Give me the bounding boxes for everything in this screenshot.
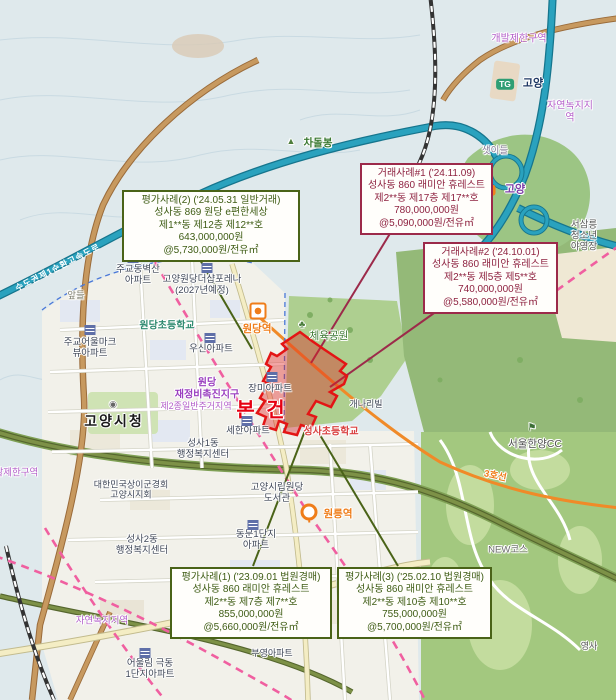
station-wondang-icon: [250, 303, 267, 320]
center-seongsa2: 성사2동 행정복지센터: [116, 535, 168, 557]
bare-ground-patch: [172, 34, 224, 58]
callout-sale-case-2: 거래사례#2 ('24.10.01) 성사동 860 래미안 휴레스트 제2**…: [423, 242, 558, 314]
school-wondang-elem: 원당초등학교: [139, 320, 194, 332]
apt-gaenari: 개나리빌: [349, 399, 382, 409]
apt-woosin: 우신아파트: [189, 345, 233, 356]
apt-icon-2: [202, 263, 213, 273]
golf-hanyang-cc: 서울한양CC: [508, 438, 562, 450]
apt-buyeong: 부영아파트: [251, 648, 292, 658]
peak-chadolbong: 차돌봉: [304, 137, 333, 149]
station-wolleung-pin: [301, 504, 318, 521]
goyang-cityhall: 고양시청: [84, 413, 144, 429]
map-canvas: 평가사례(2) ('24.05.31 일반거래) 성사동 869 원당 e편한세…: [0, 0, 616, 700]
park-sports: 체육공원: [310, 330, 349, 342]
apt-thesharp-forena: 고양원당더샵포레나 (2027년예정): [163, 275, 242, 297]
zone-wondang-promotion: 원당 재정비촉진지구: [175, 378, 239, 401]
place-apdeul: 앞들: [67, 292, 84, 303]
golf-new-course: NEW코스: [488, 546, 528, 557]
apt-jangmi: 장미아파트: [248, 385, 292, 396]
zone-natural-green-right: 자연녹지지역: [547, 101, 593, 124]
callout-appraisal-case-3: 평가사례(3) ('25.02.10 법원경매) 성사동 860 래미안 휴레스…: [337, 567, 492, 639]
apt-jugyo-viewpark: 주교어울마크 뷰아파트: [64, 338, 116, 360]
tollgate-badge: TG: [496, 79, 514, 90]
org-veterans-goyang: 대한민국상이군경회 고양시지회: [94, 480, 169, 501]
library-wondang: 고양시립원당 도서관: [251, 483, 303, 505]
apt-sehan: 세한아파트: [226, 427, 270, 438]
callout-appraisal-case-1: 평가사례(1) ('23.09.01 법원경매) 성사동 860 래미안 휴레스…: [170, 567, 332, 639]
zone-natural-green-bottom: 자연녹지지역: [76, 617, 128, 628]
place-yeongsa: 영사: [581, 641, 598, 651]
zone-greenbelt-left: 개발제한구역: [0, 469, 38, 480]
apt-icon-8: [140, 648, 151, 658]
callout-sale-case-1: 거래사례#1 ('24.11.09) 성사동 860 래미안 휴레스트 제2**…: [360, 163, 493, 235]
station-wolleung: 원릉역: [324, 508, 353, 520]
center-seongsa1: 성사1동 행정복지센터: [177, 439, 229, 461]
apt-icon-6: [242, 416, 253, 426]
apt-icon-3: [85, 325, 96, 335]
callout-appraisal-case-2: 평가사례(2) ('24.05.31 일반거래) 성사동 869 원당 e편한세…: [122, 190, 300, 262]
peak-chadolbong-icon: ▲: [287, 136, 296, 146]
goyang-cityhall-icon: ◉: [109, 399, 117, 409]
zone-residential: 제2종일반주거지역: [160, 401, 231, 411]
school-seongsa-elem: 성사초등학교: [303, 426, 358, 438]
zone-greenbelt-top: 개발제한구역: [491, 33, 546, 45]
place-seosamneung-camp: 서삼릉청소년 야영장: [568, 221, 600, 254]
park-sports-icon: ♣: [299, 319, 306, 331]
apt-jugyo-byeoksan: 주교동벽산 아파트: [116, 265, 160, 287]
apt-icon-5: [267, 372, 278, 382]
golf-flag-icon: ⚑: [528, 422, 537, 434]
station-wondang: 원당역: [243, 323, 272, 335]
junction-goyang: 고양: [505, 184, 525, 197]
tollgate-goyang: 고양: [523, 78, 543, 91]
apt-ulim-geukdong: 어울림 극동 1단지아파트: [126, 659, 175, 681]
apt-icon-7: [248, 520, 259, 530]
apt-dongmun1: 동문1단지 아파트: [236, 530, 276, 552]
place-saetideul: 샛이들: [482, 147, 508, 158]
apt-icon-4: [205, 333, 216, 343]
